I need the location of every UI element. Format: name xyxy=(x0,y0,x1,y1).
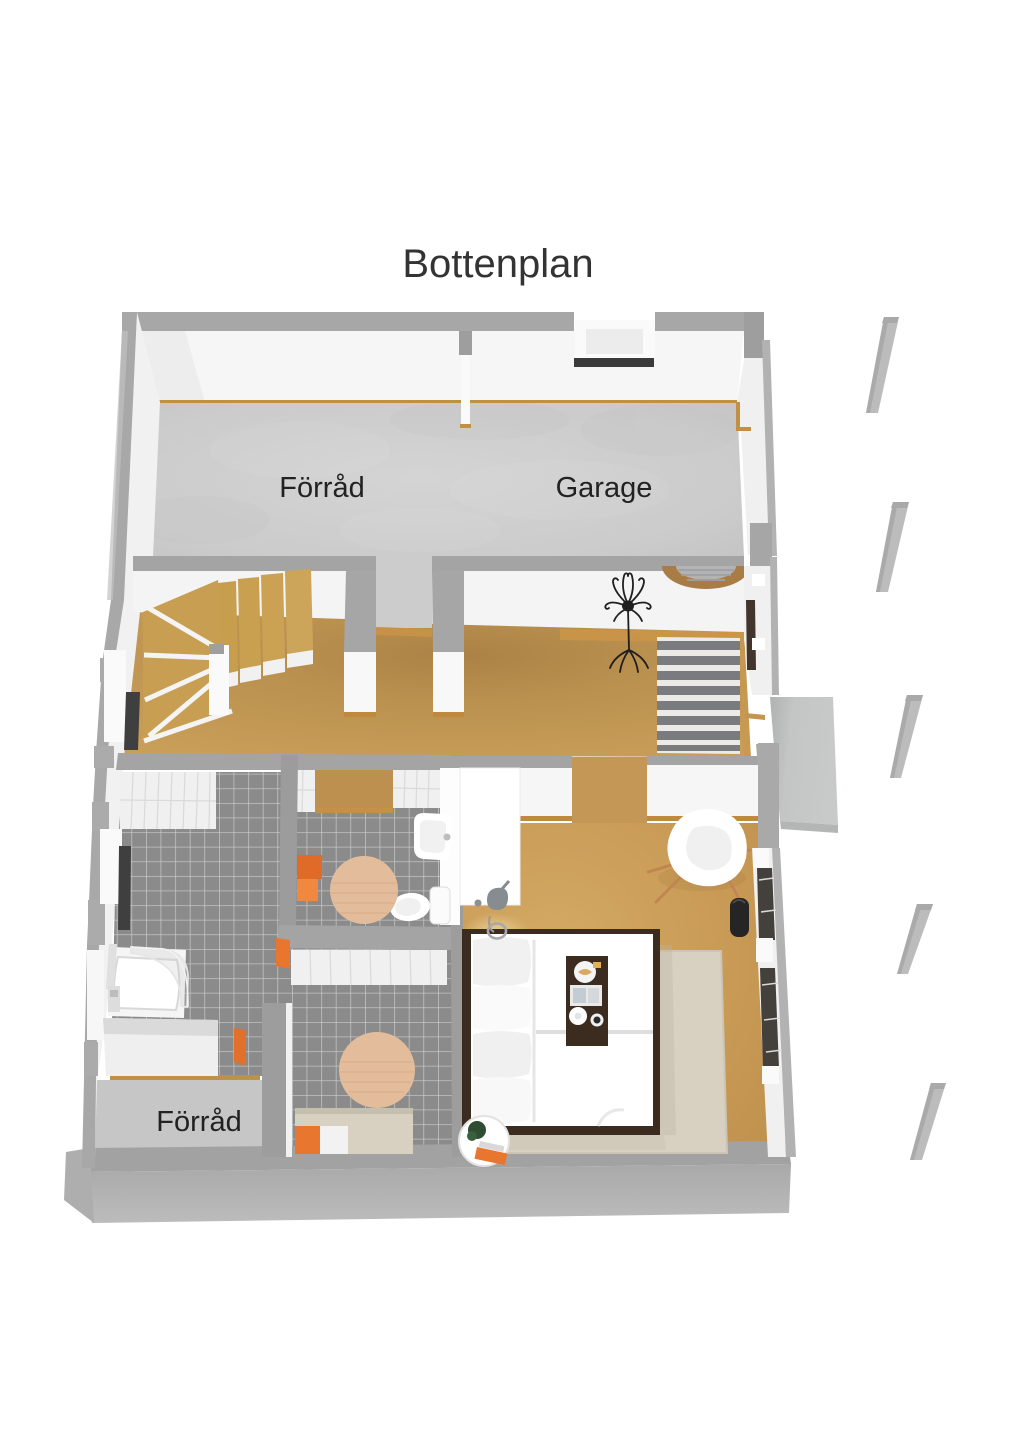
svg-text:Förråd: Förråd xyxy=(156,1106,241,1138)
svg-text:Förråd: Förråd xyxy=(279,472,364,504)
svg-text:Garage: Garage xyxy=(556,472,653,504)
svg-text:Bottenplan: Bottenplan xyxy=(402,242,593,286)
